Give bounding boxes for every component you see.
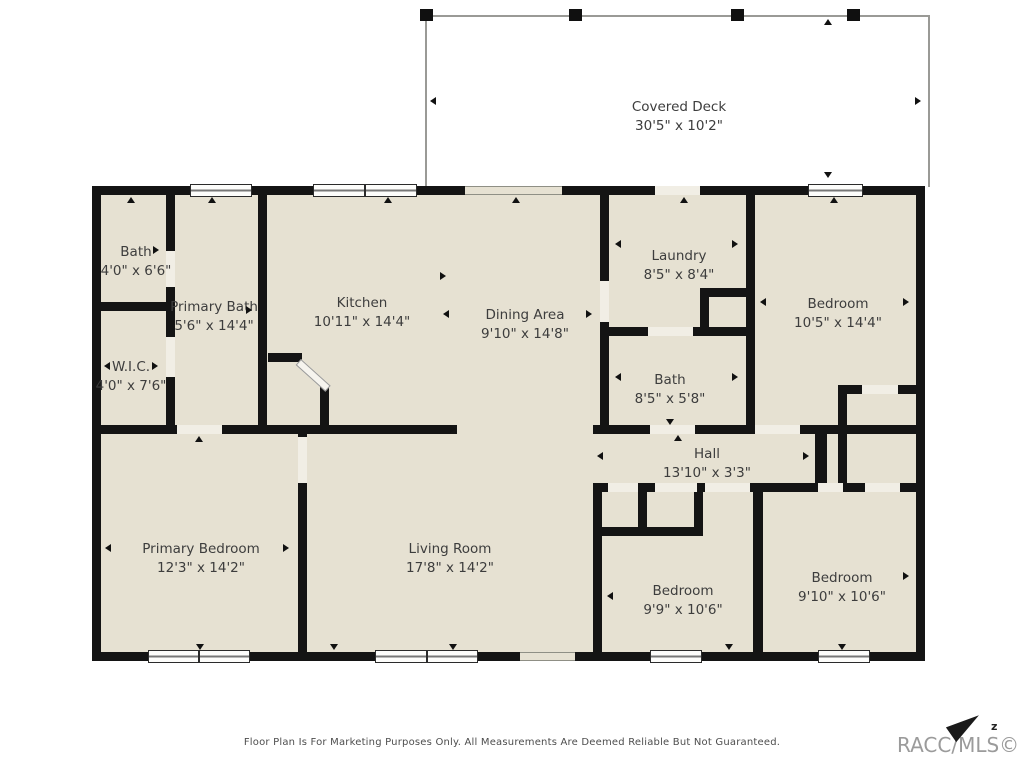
wall [593, 483, 602, 661]
window [190, 184, 252, 197]
dimension-marker [246, 306, 252, 314]
room-name: Dining Area [481, 306, 569, 325]
wall [638, 492, 647, 536]
wall [268, 353, 302, 362]
window-divider [426, 651, 428, 662]
door-opening [600, 281, 609, 322]
room-name: Covered Deck [632, 98, 726, 117]
dimension-marker [903, 298, 909, 306]
deck-post [420, 9, 433, 21]
room-label-covered-deck: Covered Deck 30'5" x 10'2" [632, 98, 726, 136]
door-opening [818, 483, 843, 492]
wall [838, 385, 847, 492]
room-name: Primary Bath [170, 298, 258, 317]
dimension-marker [615, 240, 621, 248]
dimension-marker [680, 197, 688, 203]
deck-post [569, 9, 582, 21]
room-dims: 9'10" x 10'6" [798, 588, 886, 607]
dimension-marker [195, 436, 203, 442]
dimension-marker [430, 97, 436, 105]
dimension-marker [512, 197, 520, 203]
disclaimer-text: Floor Plan Is For Marketing Purposes Onl… [0, 737, 1024, 748]
room-dims: 8'5" x 5'8" [635, 390, 706, 409]
room-name: Kitchen [314, 294, 411, 313]
door-opening [655, 186, 700, 195]
room-label-bedroom-ne: Bedroom 10'5" x 14'4" [794, 295, 882, 333]
dimension-marker [760, 298, 766, 306]
dimension-marker [824, 19, 832, 25]
dimension-marker [838, 644, 846, 650]
dimension-marker [586, 310, 592, 318]
wall [593, 425, 843, 434]
dimension-marker [330, 644, 338, 650]
dimension-marker [607, 592, 613, 600]
room-label-bedroom-se: Bedroom 9'10" x 10'6" [798, 569, 886, 607]
dimension-marker [732, 240, 738, 248]
dimension-marker [127, 197, 135, 203]
dimension-marker [824, 172, 832, 178]
dimension-marker [915, 97, 921, 105]
dimension-marker [725, 644, 733, 650]
dimension-marker [615, 373, 621, 381]
room-name: Bath [635, 371, 706, 390]
door-opening [608, 483, 638, 492]
room-name: Bedroom [798, 569, 886, 588]
window [375, 650, 478, 663]
wall [916, 186, 925, 661]
door-opening [755, 425, 800, 434]
sliding-door [465, 186, 562, 195]
window-divider [364, 185, 366, 196]
dimension-marker [153, 246, 159, 254]
dimension-marker [384, 197, 392, 203]
room-label-bedroom-s: Bedroom 9'9" x 10'6" [643, 582, 722, 620]
room-name: Living Room [406, 540, 494, 559]
door-opening [650, 425, 695, 434]
room-name: Bath [101, 243, 172, 262]
dimension-marker [443, 310, 449, 318]
room-dims: 10'5" x 14'4" [794, 314, 882, 333]
dimension-marker [208, 197, 216, 203]
wall [593, 527, 703, 536]
room-dims: 12'3" x 14'2" [142, 559, 260, 578]
door-opening [298, 437, 307, 483]
door-opening [655, 483, 697, 492]
room-dims: 10'11" x 14'4" [314, 313, 411, 332]
floor-plan-canvas: Covered Deck 30'5" x 10'2" [0, 0, 1024, 768]
window [650, 650, 702, 663]
dimension-marker [666, 419, 674, 425]
door-opening [862, 385, 898, 394]
room-dims: 9'9" x 10'6" [643, 601, 722, 620]
room-dims: 13'10" x 3'3" [663, 464, 751, 483]
wall [320, 385, 329, 434]
room-dims: 4'0" x 7'6" [96, 377, 167, 396]
dimension-marker [449, 644, 457, 650]
dimension-marker [105, 544, 111, 552]
deck-post [731, 9, 744, 21]
door-opening [177, 425, 222, 434]
room-label-primary-bath: Primary Bath 5'6" x 14'4" [170, 298, 258, 336]
compass-label: z [991, 720, 997, 733]
wall [92, 302, 175, 311]
room-label-dining-area: Dining Area 9'10" x 14'8" [481, 306, 569, 344]
window [313, 184, 417, 197]
window [148, 650, 250, 663]
deck-post [847, 9, 860, 21]
room-name: Hall [663, 445, 751, 464]
dimension-marker [283, 544, 289, 552]
window [818, 650, 870, 663]
dimension-marker [196, 644, 204, 650]
room-name: Bedroom [794, 295, 882, 314]
room-name: Laundry [644, 247, 715, 266]
dimension-marker [830, 197, 838, 203]
door-opening [705, 483, 750, 492]
dimension-marker [903, 572, 909, 580]
room-label-bath-1: Bath 4'0" x 6'6" [101, 243, 172, 281]
room-name: Bedroom [643, 582, 722, 601]
dimension-marker [440, 272, 446, 280]
wall [753, 483, 763, 661]
room-dims: 30'5" x 10'2" [632, 117, 726, 136]
wall [815, 434, 827, 483]
room-label-bath-2: Bath 8'5" x 5'8" [635, 371, 706, 409]
room-dims: 4'0" x 6'6" [101, 262, 172, 281]
dimension-marker [674, 435, 682, 441]
dimension-marker [104, 362, 110, 370]
wall [838, 425, 925, 434]
dimension-marker [450, 425, 456, 433]
door-opening [648, 327, 693, 336]
room-name: Primary Bedroom [142, 540, 260, 559]
door-opening [166, 337, 175, 377]
window [808, 184, 863, 197]
wall [258, 186, 267, 434]
room-label-primary-bedroom: Primary Bedroom 12'3" x 14'2" [142, 540, 260, 578]
room-label-kitchen: Kitchen 10'11" x 14'4" [314, 294, 411, 332]
dimension-marker [597, 452, 603, 460]
dimension-marker [152, 362, 158, 370]
wall [746, 186, 755, 434]
room-dims: 8'5" x 8'4" [644, 266, 715, 285]
room-dims: 9'10" x 14'8" [481, 325, 569, 344]
sliding-door [520, 652, 575, 661]
covered-deck: Covered Deck 30'5" x 10'2" [425, 15, 930, 187]
dimension-marker [803, 452, 809, 460]
room-label-hall: Hall 13'10" x 3'3" [663, 445, 751, 483]
room-label-laundry: Laundry 8'5" x 8'4" [644, 247, 715, 285]
dimension-marker [732, 373, 738, 381]
wall [694, 492, 703, 536]
door-opening [865, 483, 900, 492]
room-dims: 5'6" x 14'4" [170, 317, 258, 336]
room-label-living-room: Living Room 17'8" x 14'2" [406, 540, 494, 578]
window-divider [198, 651, 200, 662]
room-dims: 17'8" x 14'2" [406, 559, 494, 578]
wall [310, 425, 457, 434]
